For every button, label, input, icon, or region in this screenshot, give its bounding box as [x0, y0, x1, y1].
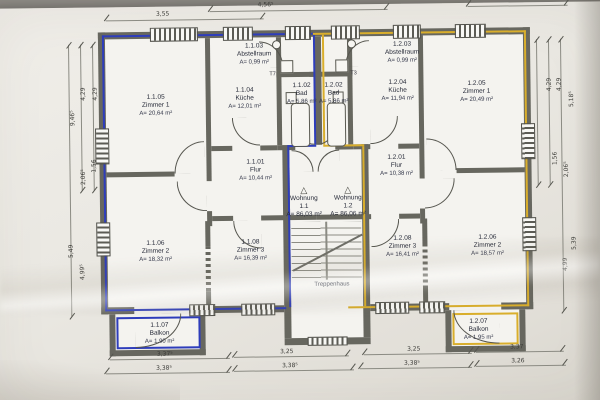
room-label-1.1.04-line: A= 12,01 m²	[228, 103, 261, 111]
room-label-1.1.02-line: Bad	[287, 90, 317, 99]
window	[285, 26, 311, 40]
apartment-label-1.1-line: Wohnung	[286, 195, 322, 204]
entrance-marker-icon: △	[286, 186, 322, 195]
room-label-1.1.07-line: Balkon	[145, 330, 175, 339]
window	[393, 25, 421, 39]
room-label-1.1.06: 1.1.06Zimmer 2A= 18,32 m²	[139, 240, 172, 265]
room-label-1.1.02-line: 1.1.02	[287, 82, 317, 91]
room-label-1.2.03-line: Abstellraum	[385, 49, 419, 58]
dimension-label: 4,29	[546, 78, 553, 91]
dimension-line	[476, 365, 566, 367]
room-label-1.1.03-line: Abstellraum	[237, 51, 271, 60]
bathtub-icon	[327, 102, 347, 146]
room-label-1.2.06: 1.2.06Zimmer 2A= 18,57 m²	[471, 234, 504, 259]
room-label-1.2.05-line: A= 20,49 m²	[460, 97, 493, 105]
room-label-1.1.06-line: Zimmer 2	[139, 248, 172, 257]
fixture-symbol-icon	[347, 39, 356, 48]
room-label-1.1.08-line: Zimmer 3	[234, 247, 267, 256]
washer-icon	[280, 60, 293, 73]
window	[223, 27, 253, 41]
room-label-1.2.01: 1.2.01FlurA= 10,38 m²	[380, 154, 413, 179]
dimension-label: 5,18⁵	[568, 91, 575, 107]
room-label-1.1.05-line: A= 20,64 m²	[139, 110, 172, 118]
dimension-label: 4,99	[562, 258, 569, 271]
room-label-1.2.06-line: Zimmer 2	[471, 242, 504, 251]
dimension-label: 3,26	[511, 357, 524, 364]
dimension-label: 5,49	[68, 245, 75, 258]
room-label-1.2.03: 1.2.03AbstellraumA= 0,99 m²	[385, 41, 420, 66]
room-label-1.1.05: 1.1.05Zimmer 1A= 20,64 m²	[139, 94, 172, 119]
window	[189, 304, 215, 316]
room-label-1.1.01-line: A= 10,44 m²	[239, 175, 272, 183]
room-label-1.2.04: 1.2.04KücheA= 11,94 m²	[381, 79, 414, 104]
wall	[399, 214, 420, 219]
room-label-1.2.04-line: A= 11,94 m²	[381, 95, 413, 103]
room-label-1.1.07-line: A= 1,90 m²	[145, 338, 175, 346]
dimension-label: 3,37⁵	[157, 351, 173, 358]
dimension-line	[106, 372, 230, 375]
wall	[211, 146, 232, 151]
dimension-label: 1,56	[91, 159, 98, 172]
dimension-line	[468, 5, 568, 7]
dimension-line	[110, 358, 230, 360]
room-label-1.2.01-line: A= 10,38 m²	[380, 170, 413, 178]
apartment-label-1.1: △Wohnung1.1A= 86,03 m²	[286, 186, 322, 220]
floor-plan: Treppenhaus 1.1.05Zimmer 1A= 20,64 m²1.1…	[0, 0, 600, 400]
dimension-label: 3,25	[407, 346, 420, 353]
room-label-1.1.06-line: A= 18,32 m²	[139, 256, 172, 264]
room-label-1.1.03-line: A= 0,99 m²	[237, 59, 271, 67]
wall	[398, 144, 419, 149]
room-label-1.2.07-line: A= 1,95 m²	[464, 335, 494, 343]
room-label-1.1.05-line: Zimmer 1	[139, 102, 172, 111]
room-label-1.1.02-line: A= 5,86 m²	[287, 99, 317, 107]
wall-dashed	[205, 246, 211, 291]
room-label-1.2.02-line: 1.2.02	[319, 81, 349, 90]
room-label-1.2.02-line: A= 5,86 m²	[319, 98, 349, 106]
dimension-label: 9,46⁵	[69, 110, 76, 126]
dimension-line	[234, 355, 349, 357]
dimension-label: 3,55	[156, 11, 169, 18]
window	[308, 336, 348, 345]
fixture-symbol-icon	[272, 40, 281, 49]
stairwell-label: Treppenhaus	[314, 281, 349, 289]
room-label-1.2.02-line: Bad	[319, 90, 349, 99]
window	[455, 24, 486, 38]
room-label-1.2.07-line: 1.2.07	[464, 318, 494, 327]
photo-of-floor-plan: Treppenhaus 1.1.05Zimmer 1A= 20,64 m²1.1…	[0, 0, 600, 400]
apartment-label-1.2: △Wohnung1.2A= 86,06 m²	[330, 185, 366, 219]
room-label-1.1.08-line: A= 16,39 m²	[234, 255, 267, 263]
window	[96, 222, 110, 256]
window	[375, 302, 409, 314]
apartment-label-1.2-line: A= 86,06 m²	[330, 210, 366, 219]
room-label-1.1.02: 1.1.02BadA= 5,86 m²	[287, 82, 317, 107]
dimension-line	[360, 367, 472, 369]
wall	[205, 221, 210, 246]
dimension-line	[476, 351, 564, 353]
window	[241, 303, 275, 315]
window	[522, 217, 536, 251]
dimension-line	[68, 45, 72, 317]
wall-dashed	[422, 243, 428, 288]
dimension-label: 3,25	[280, 348, 293, 355]
dimension-label: 4,29	[556, 78, 563, 91]
room-label-1.2.05: 1.2.05Zimmer 1A= 20,49 m²	[460, 80, 493, 105]
room-label-1.2.02: 1.2.02BadA= 5,86 m²	[319, 81, 349, 106]
dimension-label: 4,99⁵	[79, 264, 86, 280]
door-tag: T7	[269, 71, 275, 77]
wall	[260, 145, 277, 150]
dimension-label: 3,38⁵	[404, 360, 420, 367]
room-label-1.2.06-line: A= 18,57 m²	[471, 250, 504, 258]
window	[331, 25, 360, 39]
room-label-1.2.08: 1.2.08Zimmer 3A= 16,41 m²	[386, 235, 419, 260]
dimension-label: 4,29	[80, 87, 87, 100]
dimension-label: 2,06⁵	[80, 169, 87, 185]
room-label-1.1.03: 1.1.03AbstellraumA= 0,99 m²	[237, 42, 272, 67]
room-label-1.2.08-line: A= 16,41 m²	[386, 251, 419, 259]
paper-sheet: Treppenhaus 1.1.05Zimmer 1A= 20,64 m²1.1…	[0, 1, 600, 400]
dimension-label: 3,37	[510, 343, 523, 350]
room-label-1.1.04: 1.1.04KücheA= 12,01 m²	[228, 86, 261, 111]
room-label-1.1.01: 1.1.01FlurA= 10,44 m²	[239, 158, 272, 183]
dimension-line	[548, 39, 551, 185]
wall	[107, 172, 175, 178]
room-label-1.2.08-line: Zimmer 3	[386, 243, 419, 252]
wall	[212, 216, 233, 221]
dimension-label: 2,06⁵	[563, 161, 570, 177]
bathtub-icon	[291, 103, 311, 147]
dimension-label: 1,56	[552, 152, 559, 165]
washer-icon	[335, 59, 348, 72]
entrance-marker-icon: △	[330, 185, 366, 194]
window	[419, 301, 445, 313]
window	[521, 123, 535, 159]
room-label-1.1.07: 1.1.07BalkonA= 1,90 m²	[145, 322, 175, 347]
apartment-label-1.2-line: Wohnung	[330, 194, 366, 203]
wall	[422, 218, 427, 243]
room-label-1.2.03-line: A= 0,99 m²	[385, 57, 419, 65]
dimension-line	[536, 39, 539, 185]
room-label-1.2.07-line: Balkon	[464, 326, 494, 335]
room-label-1.1.07-line: 1.1.07	[145, 322, 175, 331]
dimension-label: 4,56⁵	[258, 1, 274, 8]
room-label-1.2.05-line: Zimmer 1	[460, 88, 493, 97]
dimension-label: 3,38⁵	[156, 365, 172, 372]
dimension-line	[106, 18, 264, 21]
dimension-line	[234, 369, 354, 371]
dimension-label: 3,38⁵	[282, 362, 298, 369]
dimension-line	[210, 9, 388, 12]
dimension-line	[364, 353, 472, 355]
dimension-label: 4,29	[92, 87, 99, 100]
window	[150, 27, 198, 42]
wall	[457, 167, 525, 173]
dimension-label: 5,39	[571, 236, 578, 249]
room-label-1.1.08: 1.1.08Zimmer 3A= 16,39 m²	[234, 238, 267, 263]
door-tag: T3	[350, 70, 356, 76]
room-label-1.2.07: 1.2.07BalkonA= 1,95 m²	[464, 318, 494, 343]
apartment-label-1.1-line: A= 86,03 m²	[286, 211, 322, 220]
